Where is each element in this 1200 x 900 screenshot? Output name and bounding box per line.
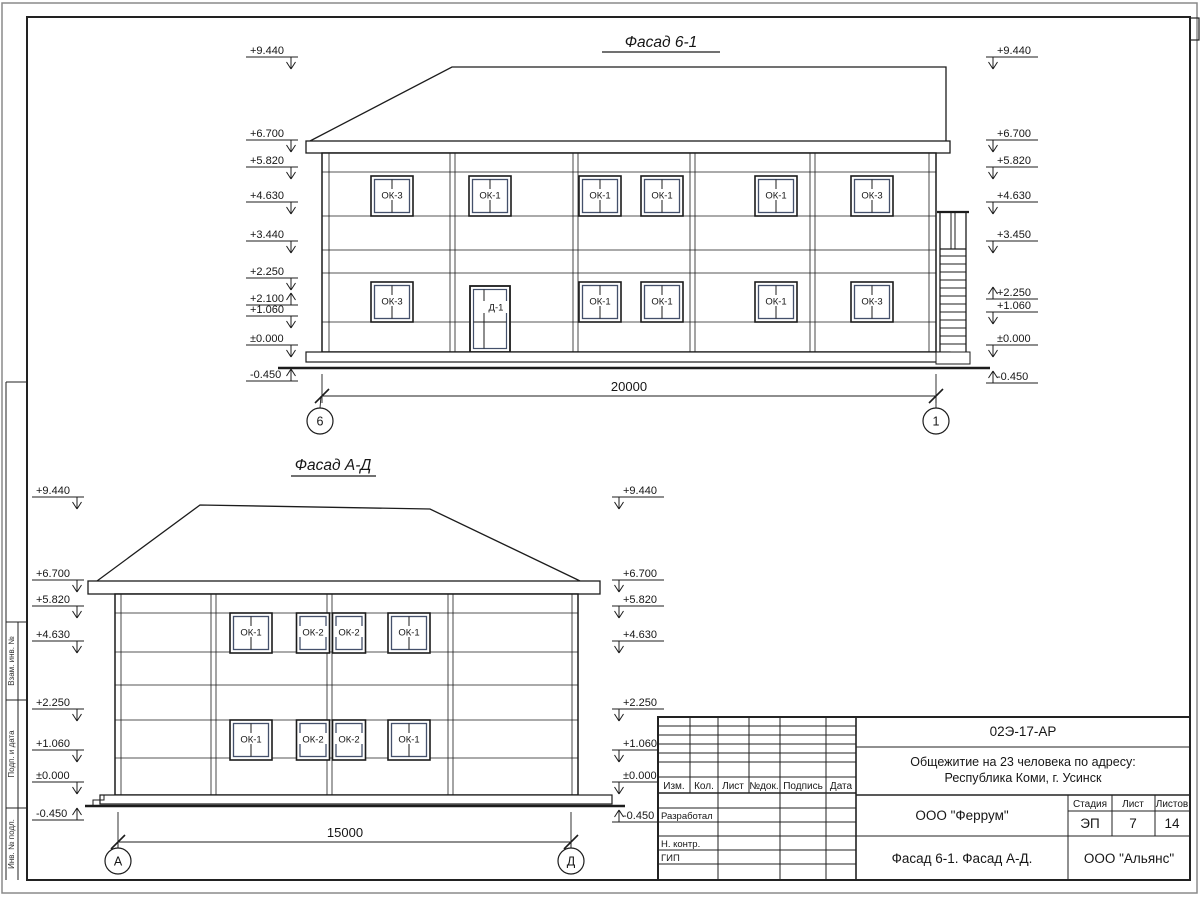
- role-razrabotal: Разработал: [661, 811, 713, 822]
- window-ОК-1: ОК-1: [388, 720, 430, 760]
- window-ОК-1: ОК-1: [755, 282, 797, 322]
- elevation-value: ±0.000: [250, 333, 284, 345]
- object-name-line1: Общежитие на 23 человека по адресу:: [910, 755, 1135, 769]
- elevation-value: +5.820: [623, 594, 657, 606]
- stamp-vzam-inv: Взам. инв. №: [7, 636, 16, 686]
- role-gip: ГИП: [661, 853, 680, 864]
- window-ОК-1: ОК-1: [641, 282, 683, 322]
- elevation-value: +4.630: [36, 629, 70, 641]
- facade1-eaves-band: [306, 141, 950, 153]
- elevation-value: +1.060: [623, 738, 657, 750]
- window-label: ОК-1: [589, 297, 610, 308]
- drawing-sheet: Взам. инв. № Подп. и дата Инв. № подл. Ф…: [0, 0, 1200, 900]
- window-label: ОК-3: [381, 297, 402, 308]
- elevation-value: -0.450: [997, 371, 1028, 383]
- facade2-title: Фасад А-Д: [295, 457, 372, 474]
- window-ОК-3: ОК-3: [851, 282, 893, 322]
- elevation-value: ±0.000: [623, 770, 657, 782]
- facade1-title: Фасад 6-1: [625, 34, 698, 51]
- facade1-dimension-label: 20000: [611, 379, 647, 394]
- window-ОК-1: ОК-1: [579, 176, 621, 216]
- window-ОК-1: ОК-1: [230, 720, 272, 760]
- elevation-value: ±0.000: [997, 333, 1031, 345]
- window-label: ОК-2: [338, 735, 359, 746]
- window-ОК-2: ОК-2: [333, 720, 366, 760]
- elevation-value: +9.440: [36, 485, 70, 497]
- window-label: ОК-2: [302, 735, 323, 746]
- window-ОК-1: ОК-1: [579, 282, 621, 322]
- window-label: ОК-1: [479, 191, 500, 202]
- sheets-label: Листов: [1156, 799, 1189, 810]
- window-label: ОК-1: [765, 297, 786, 308]
- window-label: ОК-1: [240, 735, 261, 746]
- rev-header-list: Лист: [722, 781, 744, 792]
- rev-header-podpis: Подпись: [783, 781, 823, 792]
- window-label: ОК-2: [302, 628, 323, 639]
- object-name-line2: Республика Коми, г. Усинск: [945, 771, 1102, 785]
- elevation-value: +2.250: [36, 697, 70, 709]
- svg-text:1: 1: [933, 415, 940, 429]
- title-block: 02Э-17-АР Общежитие на 23 человека по ад…: [658, 717, 1190, 880]
- elevation-value: -0.450: [36, 808, 67, 820]
- elevation-value: +3.450: [997, 229, 1031, 241]
- window-ОК-1: ОК-1: [388, 613, 430, 653]
- window-ОК-3: ОК-3: [371, 176, 413, 216]
- window-ОК-2: ОК-2: [297, 613, 330, 653]
- elevation-value: +9.440: [997, 45, 1031, 57]
- sheet-label: Лист: [1122, 799, 1144, 810]
- sheets-value: 14: [1164, 816, 1180, 831]
- elevation-value: +5.820: [250, 155, 284, 167]
- doc-number: 02Э-17-АР: [990, 724, 1057, 739]
- window-label: ОК-1: [651, 191, 672, 202]
- rev-header-ndok: №док.: [749, 781, 778, 792]
- stamp-podp-data: Подп. и дата: [7, 730, 16, 778]
- elevation-value: +2.250: [997, 287, 1031, 299]
- window-label: ОК-3: [381, 191, 402, 202]
- svg-text:А: А: [114, 855, 123, 869]
- elevation-value: +1.060: [250, 304, 284, 316]
- window-label: ОК-1: [240, 628, 261, 639]
- rev-header-kol: Кол.: [694, 781, 714, 792]
- elevation-value: -0.450: [250, 369, 281, 381]
- cad-canvas: Взам. инв. № Подп. и дата Инв. № подл. Ф…: [0, 0, 1200, 900]
- sheet-value: 7: [1129, 816, 1137, 831]
- window-ОК-3: ОК-3: [851, 176, 893, 216]
- rev-header-data: Дата: [830, 781, 853, 792]
- door-label: Д-1: [489, 303, 504, 314]
- elevation-value: +4.630: [997, 190, 1031, 202]
- elevation-value: +3.440: [250, 229, 284, 241]
- window-ОК-3: ОК-3: [371, 282, 413, 322]
- stamp-inv-podl: Инв. № подл.: [7, 819, 16, 869]
- elevation-value: +5.820: [36, 594, 70, 606]
- window-ОК-1: ОК-1: [230, 613, 272, 653]
- elevation-value: +6.700: [36, 568, 70, 580]
- elevation-value: +6.700: [997, 128, 1031, 140]
- window-ОК-1: ОК-1: [755, 176, 797, 216]
- facade2-plinth: [100, 795, 612, 804]
- designer-company: ООО "Феррум": [915, 808, 1009, 823]
- elevation-value: -0.450: [623, 810, 654, 822]
- window-label: ОК-1: [589, 191, 610, 202]
- elevation-value: +2.250: [250, 266, 284, 278]
- window-label: ОК-2: [338, 628, 359, 639]
- stage-label: Стадия: [1073, 799, 1107, 810]
- window-ОК-1: ОК-1: [469, 176, 511, 216]
- elevation-value: +4.630: [623, 629, 657, 641]
- window-label: ОК-1: [765, 191, 786, 202]
- drawing-title: Фасад 6-1. Фасад А-Д.: [892, 851, 1033, 866]
- window-ОК-2: ОК-2: [333, 613, 366, 653]
- elevation-value: ±0.000: [36, 770, 70, 782]
- facade1-plinth: [306, 352, 950, 362]
- window-label: ОК-1: [651, 297, 672, 308]
- window-label: ОК-1: [398, 628, 419, 639]
- rev-header-izm: Изм.: [663, 781, 684, 792]
- elevation-value: +1.060: [36, 738, 70, 750]
- elevation-value: +1.060: [997, 300, 1031, 312]
- window-ОК-1: ОК-1: [641, 176, 683, 216]
- stage-value: ЭП: [1080, 816, 1099, 831]
- elevation-value: +9.440: [250, 45, 284, 57]
- role-n-kontr: Н. контр.: [661, 839, 700, 850]
- elevation-value: +2.250: [623, 697, 657, 709]
- elevation-value: +5.820: [997, 155, 1031, 167]
- contractor-company: ООО "Альянс": [1084, 851, 1174, 866]
- facade2-eaves-band: [88, 581, 600, 594]
- facade2-dimension-label: 15000: [327, 825, 363, 840]
- window-label: ОК-1: [398, 735, 419, 746]
- window-label: ОК-3: [861, 191, 882, 202]
- elevation-value: +4.630: [250, 190, 284, 202]
- window-label: ОК-3: [861, 297, 882, 308]
- elevation-value: +6.700: [623, 568, 657, 580]
- elevation-value: +6.700: [250, 128, 284, 140]
- window-ОК-2: ОК-2: [297, 720, 330, 760]
- svg-text:Д: Д: [567, 855, 576, 869]
- elevation-value: +9.440: [623, 485, 657, 497]
- svg-text:6: 6: [317, 415, 324, 429]
